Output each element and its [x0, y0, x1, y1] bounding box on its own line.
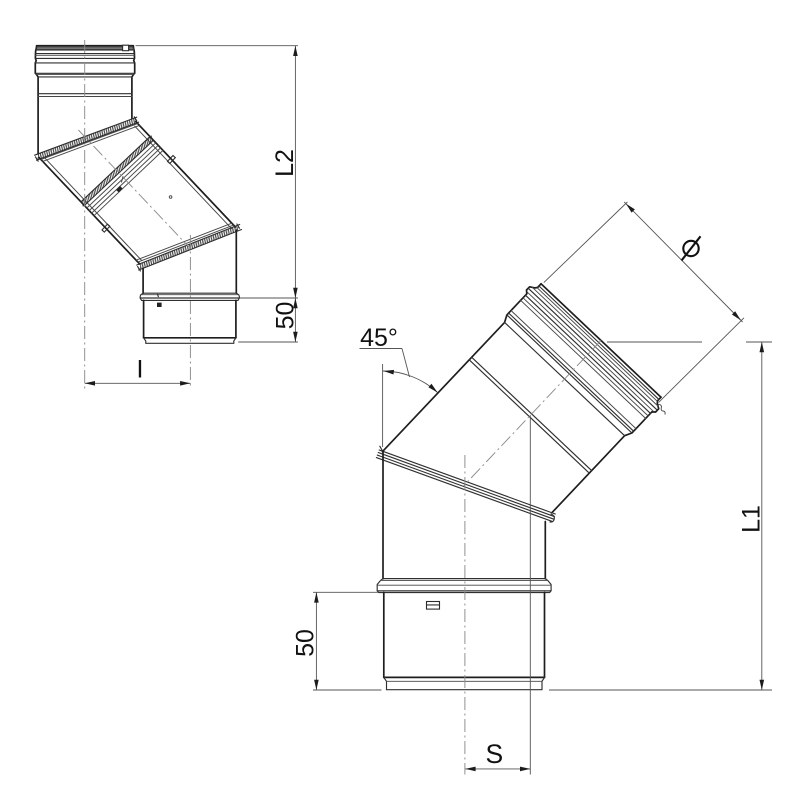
svg-text:50: 50: [292, 629, 320, 657]
svg-text:50: 50: [271, 302, 299, 330]
svg-text:S: S: [485, 739, 503, 769]
svg-text:45°: 45°: [360, 324, 398, 352]
svg-text:L2: L2: [271, 149, 299, 177]
svg-text:L1: L1: [738, 505, 766, 533]
svg-text:I: I: [137, 356, 144, 384]
